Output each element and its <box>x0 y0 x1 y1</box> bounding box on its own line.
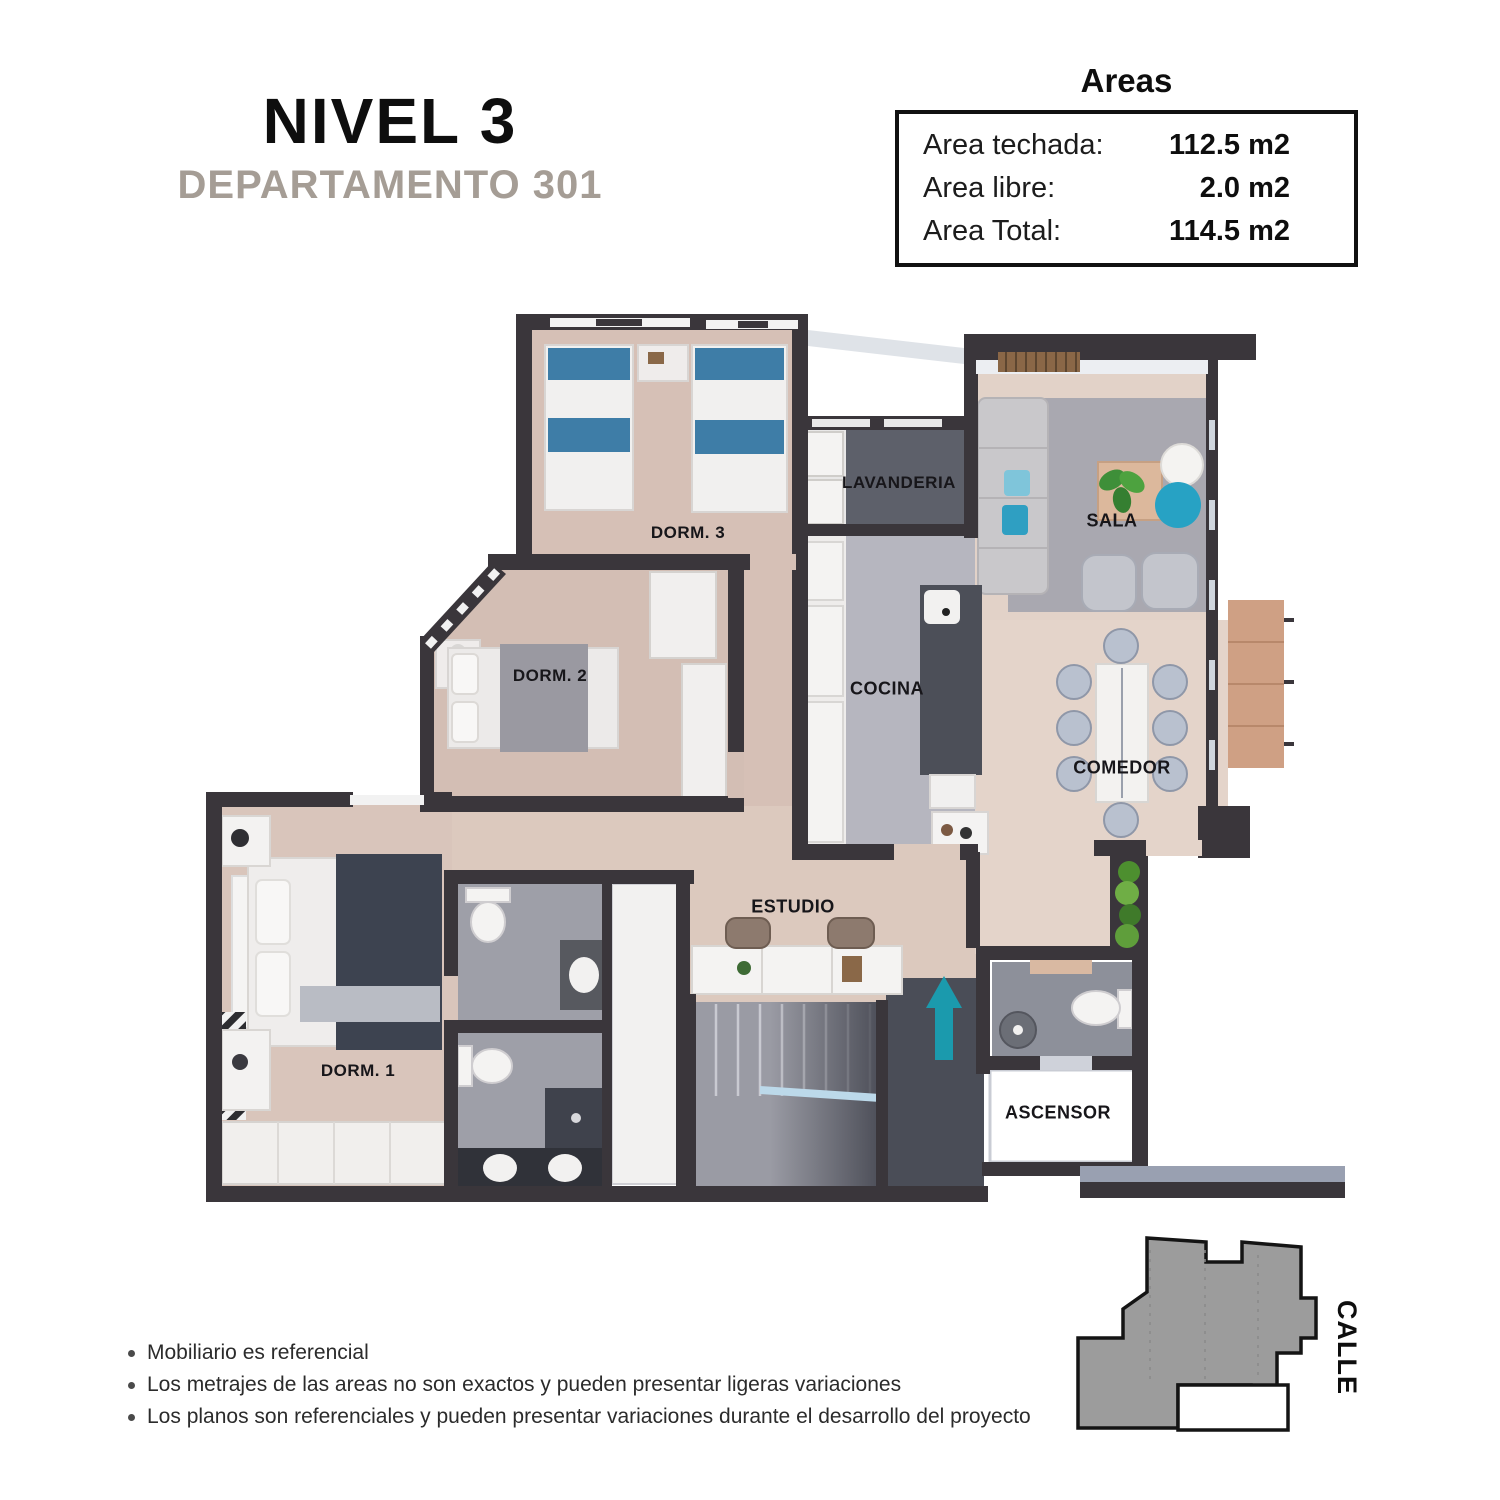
room-label-cocina: COCINA <box>850 679 924 700</box>
room-label-comedor: COMEDOR <box>1073 758 1171 779</box>
disclaimer-item: Los metrajes de las areas no son exactos… <box>128 1373 1031 1396</box>
room-label-dorm-1: DORM. 1 <box>321 1061 395 1081</box>
bullet-icon <box>128 1414 135 1421</box>
street-label: CALLE <box>1331 1300 1362 1395</box>
disclaimer-text: Mobiliario es referencial <box>147 1341 369 1364</box>
disclaimer-list: Mobiliario es referencial Los metrajes d… <box>128 1341 1031 1437</box>
key-plan <box>1078 1238 1316 1430</box>
room-label-estudio: ESTUDIO <box>751 897 835 918</box>
room-label-ascensor: ASCENSOR <box>1005 1103 1111 1124</box>
floor-plan-page: NIVEL 3 DEPARTAMENTO 301 Areas Area tech… <box>0 0 1500 1500</box>
room-label-lavanderia: LAVANDERIA <box>842 473 956 493</box>
disclaimer-item: Los planos son referenciales y pueden pr… <box>128 1405 1031 1428</box>
disclaimer-text: Los planos son referenciales y pueden pr… <box>147 1405 1031 1428</box>
bullet-icon <box>128 1382 135 1389</box>
bullet-icon <box>128 1350 135 1357</box>
disclaimer-item: Mobiliario es referencial <box>128 1341 1031 1364</box>
floor-plan-drawing <box>0 0 1500 1500</box>
room-label-sala: SALA <box>1087 511 1138 532</box>
room-label-dorm-2: DORM. 2 <box>513 666 587 686</box>
room-label-dorm-3: DORM. 3 <box>651 523 725 543</box>
footprint-notch <box>1178 1385 1288 1430</box>
disclaimer-text: Los metrajes de las areas no son exactos… <box>147 1373 901 1396</box>
